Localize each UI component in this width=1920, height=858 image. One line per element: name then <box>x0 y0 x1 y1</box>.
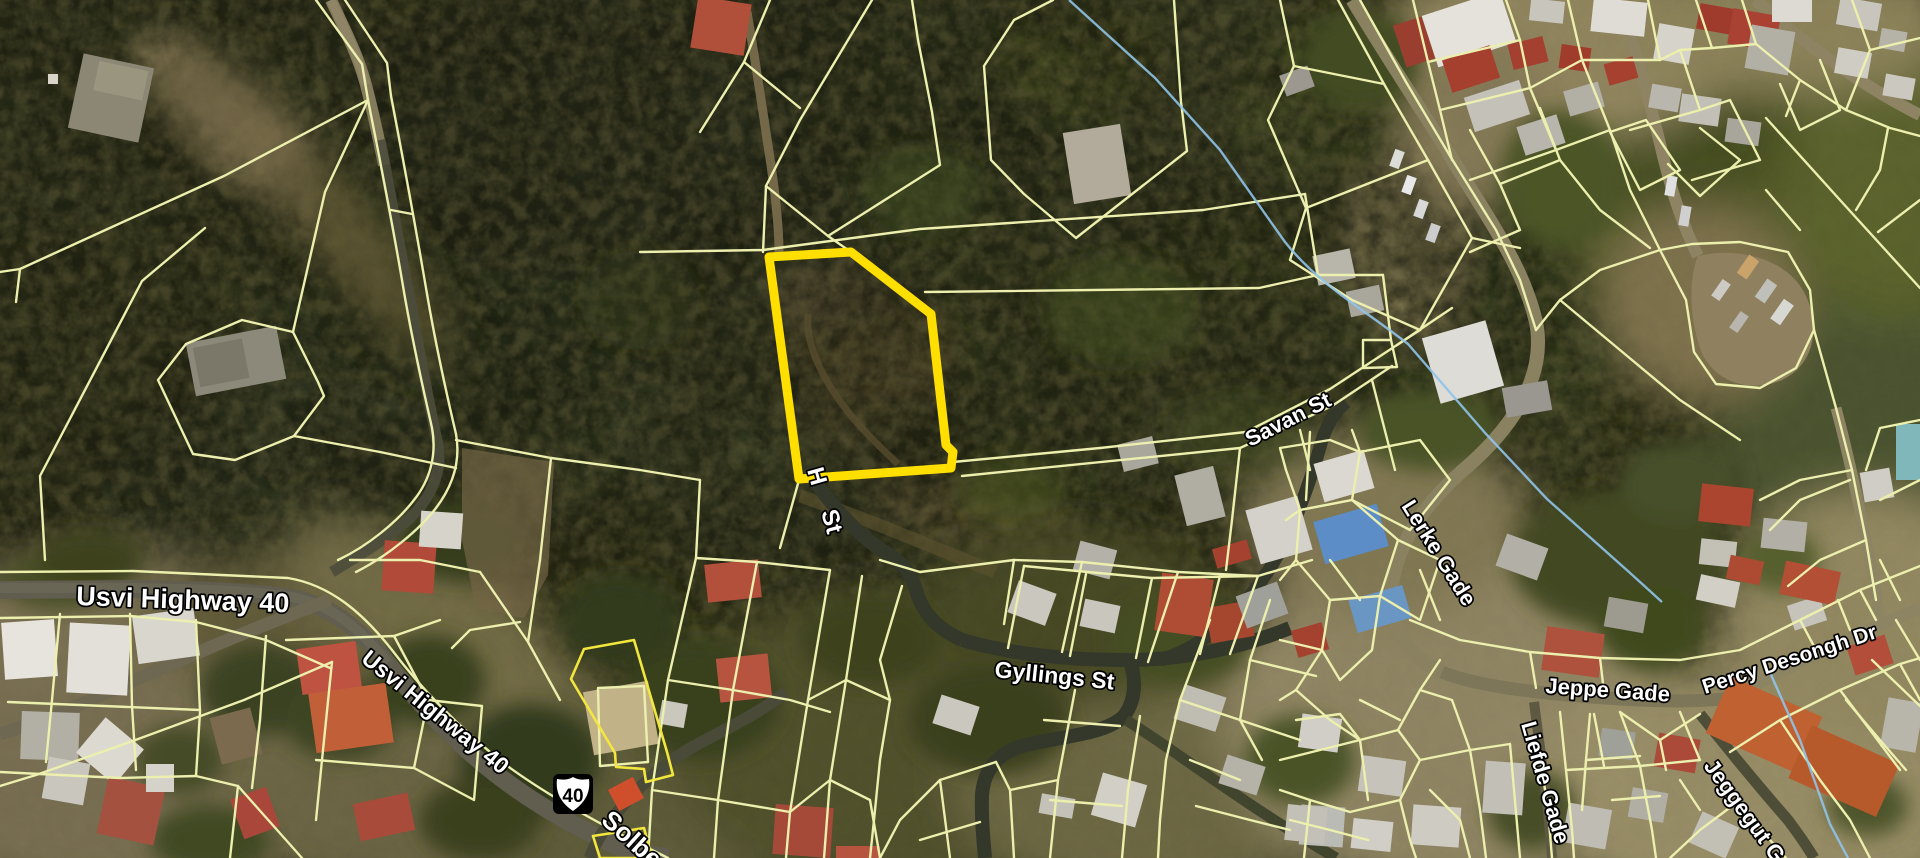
svg-text:40: 40 <box>562 786 583 807</box>
